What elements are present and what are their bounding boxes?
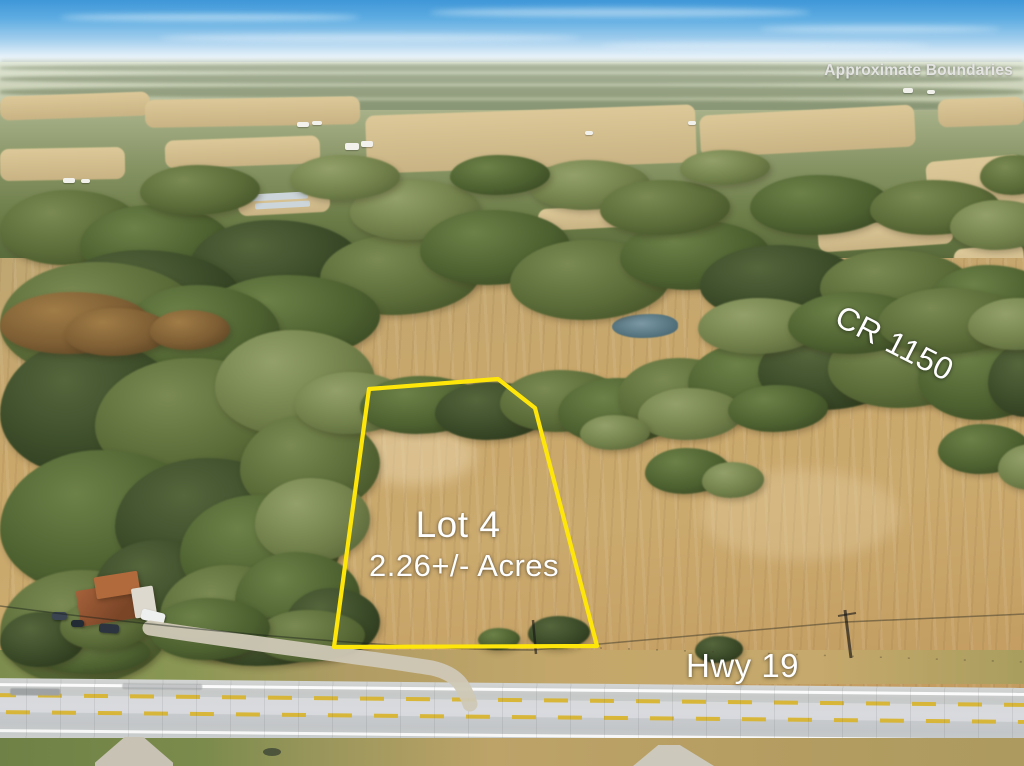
highway-label: Hwy 19: [686, 647, 799, 685]
distant-tree-row: [0, 86, 1024, 98]
distant-field: [938, 97, 1024, 128]
lane-marking-yellow-dashed: [0, 693, 1024, 707]
asphalt-patch: [122, 683, 202, 690]
farm-building: [81, 179, 90, 183]
parked-car-dark: [71, 620, 84, 627]
asphalt-patch: [10, 688, 60, 695]
farm-building: [903, 88, 913, 93]
lot-label: Lot 4: [416, 504, 501, 546]
cloud-streak: [430, 8, 810, 17]
approximate-boundaries-disclaimer: Approximate Boundaries: [824, 62, 1013, 80]
farm-building: [688, 121, 696, 125]
farm-building: [927, 90, 935, 94]
cloud-streak: [760, 26, 1000, 32]
cloud-streak: [600, 42, 930, 49]
acreage-label: 2.26+/- Acres: [369, 548, 559, 584]
farm-building: [312, 121, 322, 125]
parked-truck-dark: [52, 612, 67, 620]
road-center-band: [0, 695, 1024, 722]
pond: [612, 314, 678, 338]
farm-building: [585, 131, 593, 135]
lane-marking-yellow-dashed: [0, 710, 1024, 724]
distant-field: [145, 96, 360, 128]
farm-building: [63, 178, 75, 183]
farm-building: [345, 143, 359, 150]
distant-field: [165, 135, 321, 168]
distant-field: [0, 147, 125, 181]
cloud-streak: [60, 14, 360, 21]
cloud-streak: [160, 34, 580, 42]
farm-building: [297, 122, 309, 127]
farm-building: [361, 141, 373, 147]
roadside-bush: [263, 748, 281, 756]
aerial-listing-photo: Lot 4 2.26+/- Acres Hwy 19 CR 1150 Appro…: [0, 0, 1024, 766]
parked-car-dark: [99, 623, 120, 633]
